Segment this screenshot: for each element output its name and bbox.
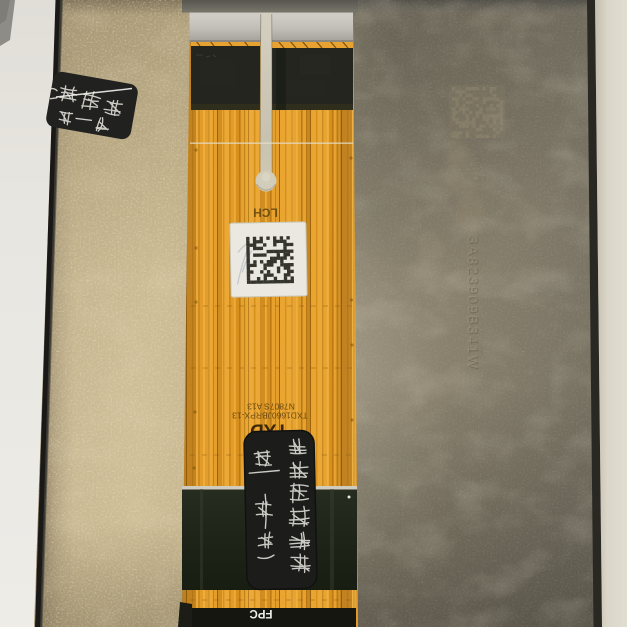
svg-text:FPC: FPC [250,607,273,619]
svg-text:N7807S A13: N7807S A13 [247,402,295,412]
svg-text:LCH: LCH [253,206,278,220]
svg-text:3A823909B341W: 3A823909B341W [464,236,480,370]
svg-text:TXD1660JBRPX-13: TXD1660JBRPX-13 [232,411,308,421]
